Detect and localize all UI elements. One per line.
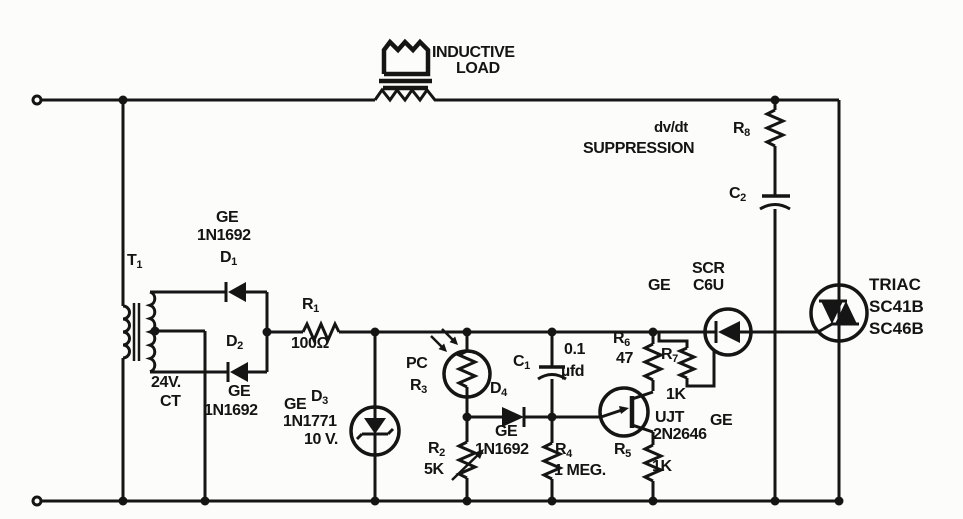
- diode-d4: [467, 407, 601, 427]
- r4-value: 1 MEG.: [554, 463, 606, 480]
- c2-ref: C2: [729, 186, 746, 205]
- ujt-part: 2N2646: [653, 427, 707, 444]
- r7-value: 1K: [666, 387, 686, 404]
- d4-brand: GE: [495, 424, 517, 441]
- potentiometer-r2: [452, 417, 484, 501]
- transformer-t1: [123, 100, 205, 501]
- inductive-load-symbol: [375, 42, 437, 100]
- r1-ref: R1: [302, 297, 319, 316]
- scr-part: C6U: [693, 278, 724, 295]
- r1-value: 100Ω: [291, 336, 329, 353]
- terminal-bottom-left: [33, 497, 41, 505]
- d1-part: 1N1692: [197, 228, 251, 245]
- r5-ref: R5: [614, 442, 631, 461]
- diode-d1: [150, 282, 267, 302]
- d3-value: 10 V.: [304, 432, 338, 449]
- c1-value: 0.1: [564, 342, 585, 359]
- center-tap-wire: [155, 331, 205, 501]
- d2-part: 1N1692: [204, 403, 258, 420]
- r6-value: 47: [616, 351, 633, 368]
- r2-ref: R2: [428, 441, 445, 460]
- scr-brand: GE: [648, 278, 670, 295]
- d4-part: 1N1692: [475, 442, 529, 459]
- primary-coil: [123, 306, 130, 358]
- triac-gate-wire: [818, 324, 832, 332]
- t1-ref: T1: [127, 253, 142, 272]
- d1-ref: D1: [220, 250, 237, 269]
- r5-value: 1K: [652, 459, 672, 476]
- d2-ref: D2: [226, 334, 243, 353]
- t1-center-tap-label: CT: [160, 394, 181, 411]
- terminal-top-left: [33, 96, 41, 104]
- suppression-label: SUPPRESSION: [583, 141, 694, 158]
- triac-kind: TRIAC: [869, 276, 921, 294]
- ujt-brand: GE: [710, 413, 732, 430]
- capacitor-c2-plate: [760, 205, 790, 210]
- d3-part: 1N1771: [283, 414, 337, 431]
- r6-ref: R6: [613, 331, 630, 350]
- scr-c6u: [705, 309, 818, 355]
- triac-part-a: SC41B: [869, 298, 924, 316]
- r3-kind: PC: [406, 356, 427, 373]
- photocell-r3: [431, 329, 490, 417]
- r3-ref: R3: [410, 378, 427, 397]
- t1-secondary-value: 24V.: [151, 375, 181, 392]
- r8-ref: R8: [733, 121, 750, 140]
- bottom-rail: [33, 497, 844, 506]
- scr-kind: SCR: [692, 261, 725, 278]
- d2-brand: GE: [228, 384, 250, 401]
- c1-ref: C1: [513, 354, 530, 373]
- inductive-load-label-2: LOAD: [456, 61, 500, 78]
- d1-brand: GE: [216, 210, 238, 227]
- d3-brand: GE: [284, 397, 306, 414]
- snubber-r8-c2: [760, 100, 790, 501]
- d3-ref: D3: [311, 389, 328, 408]
- triac-part-b: SC46B: [869, 320, 924, 338]
- c1-unit: µfd: [561, 364, 584, 381]
- d4-ref: D4: [490, 381, 507, 400]
- r2-value: 5K: [424, 462, 444, 479]
- resistor-r8-zigzag: [767, 110, 783, 146]
- ujt-2n2646: [600, 388, 653, 445]
- ujt-kind: UJT: [655, 410, 684, 427]
- r7-ref: R7: [661, 347, 678, 366]
- zener-d3: [351, 332, 399, 501]
- schematic-canvas: INDUCTIVE LOAD dv/dt SUPPRESSION R8 C2 G…: [0, 0, 963, 519]
- r4-ref: R4: [555, 442, 572, 461]
- dvdt-label: dv/dt: [654, 120, 688, 136]
